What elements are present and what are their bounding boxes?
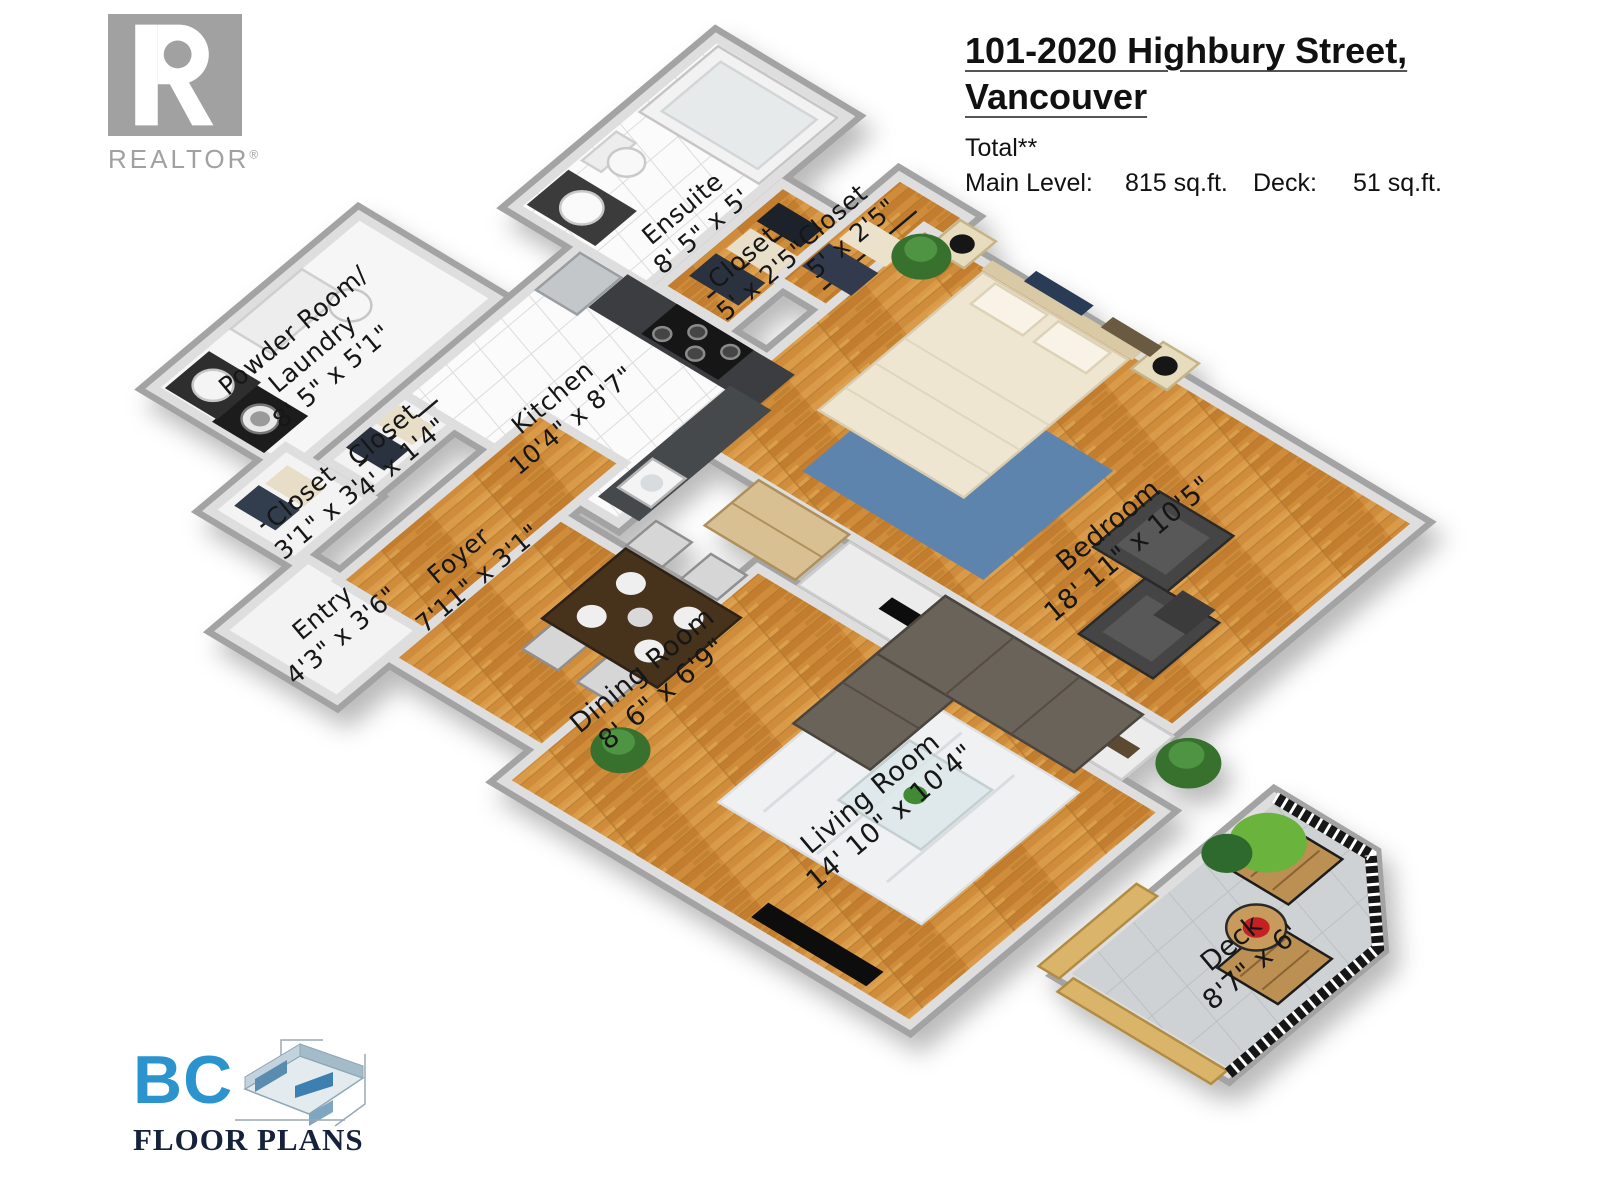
- bc-logo-row: BC: [133, 1044, 393, 1120]
- bc-logo-text: BC: [133, 1046, 233, 1114]
- plate: [616, 572, 646, 595]
- plant: [904, 237, 937, 262]
- plant: [1169, 741, 1205, 769]
- bc-floorplan-graphic-icon: [225, 1034, 375, 1135]
- floor-plan-drawing: Ensuite 8' 5" x 5' Closet 5' x 2'5" Clos…: [0, 0, 1600, 1200]
- serving-bowl: [628, 608, 653, 627]
- stove-burner: [721, 345, 739, 359]
- lamp: [1153, 356, 1178, 375]
- floor-plan-page: REALTOR® 101-2020 Highbury Street, Vanco…: [0, 0, 1600, 1200]
- plant: [1201, 834, 1252, 873]
- stove-burner: [688, 325, 706, 339]
- stove-burner: [686, 347, 704, 361]
- lamp: [950, 234, 975, 253]
- ensuite-sink: [560, 191, 603, 224]
- toilet-bowl: [608, 148, 645, 177]
- kitchen-sink-basin: [640, 474, 663, 491]
- plate: [577, 605, 607, 628]
- stove-burner: [653, 327, 671, 341]
- bc-floor-plans-logo: BC FLOOR PLANS: [133, 1044, 393, 1158]
